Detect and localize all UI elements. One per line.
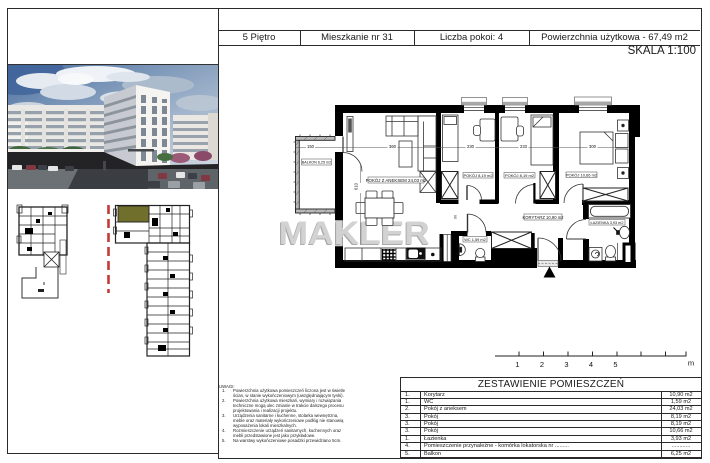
svg-text:POKÓJ 10,66 m2: POKÓJ 10,66 m2 xyxy=(566,172,598,177)
svg-text:150: 150 xyxy=(307,144,315,149)
svg-text:m: m xyxy=(688,359,694,368)
svg-text:610: 610 xyxy=(354,182,359,190)
svg-text:1: 1 xyxy=(515,360,519,369)
svg-text:POKÓJ Z ANEKSEM 24,03 m2: POKÓJ Z ANEKSEM 24,03 m2 xyxy=(366,178,427,183)
svg-text:233: 233 xyxy=(520,144,528,149)
svg-text:WC 1,59 m2: WC 1,59 m2 xyxy=(464,237,486,242)
svg-text:2: 2 xyxy=(540,360,544,369)
svg-text:POKÓJ 8,19 m2: POKÓJ 8,19 m2 xyxy=(463,173,493,178)
svg-text:3: 3 xyxy=(564,360,568,369)
svg-text:5: 5 xyxy=(613,360,617,369)
svg-text:BALKON 6,25 m2: BALKON 6,25 m2 xyxy=(302,161,331,165)
svg-text:360: 360 xyxy=(389,144,397,149)
svg-text:MAKLER: MAKLER xyxy=(279,215,430,251)
svg-text:230: 230 xyxy=(467,144,475,149)
svg-text:90: 90 xyxy=(454,215,458,219)
svg-text:300: 300 xyxy=(589,144,597,149)
svg-text:KORYTARZ 10,90 m2: KORYTARZ 10,90 m2 xyxy=(522,215,564,220)
svg-text:POKÓJ 8,19 m2: POKÓJ 8,19 m2 xyxy=(505,173,535,178)
svg-text:ŁAZIENKA 3,93 m2: ŁAZIENKA 3,93 m2 xyxy=(591,221,624,225)
svg-text:4: 4 xyxy=(589,360,593,369)
